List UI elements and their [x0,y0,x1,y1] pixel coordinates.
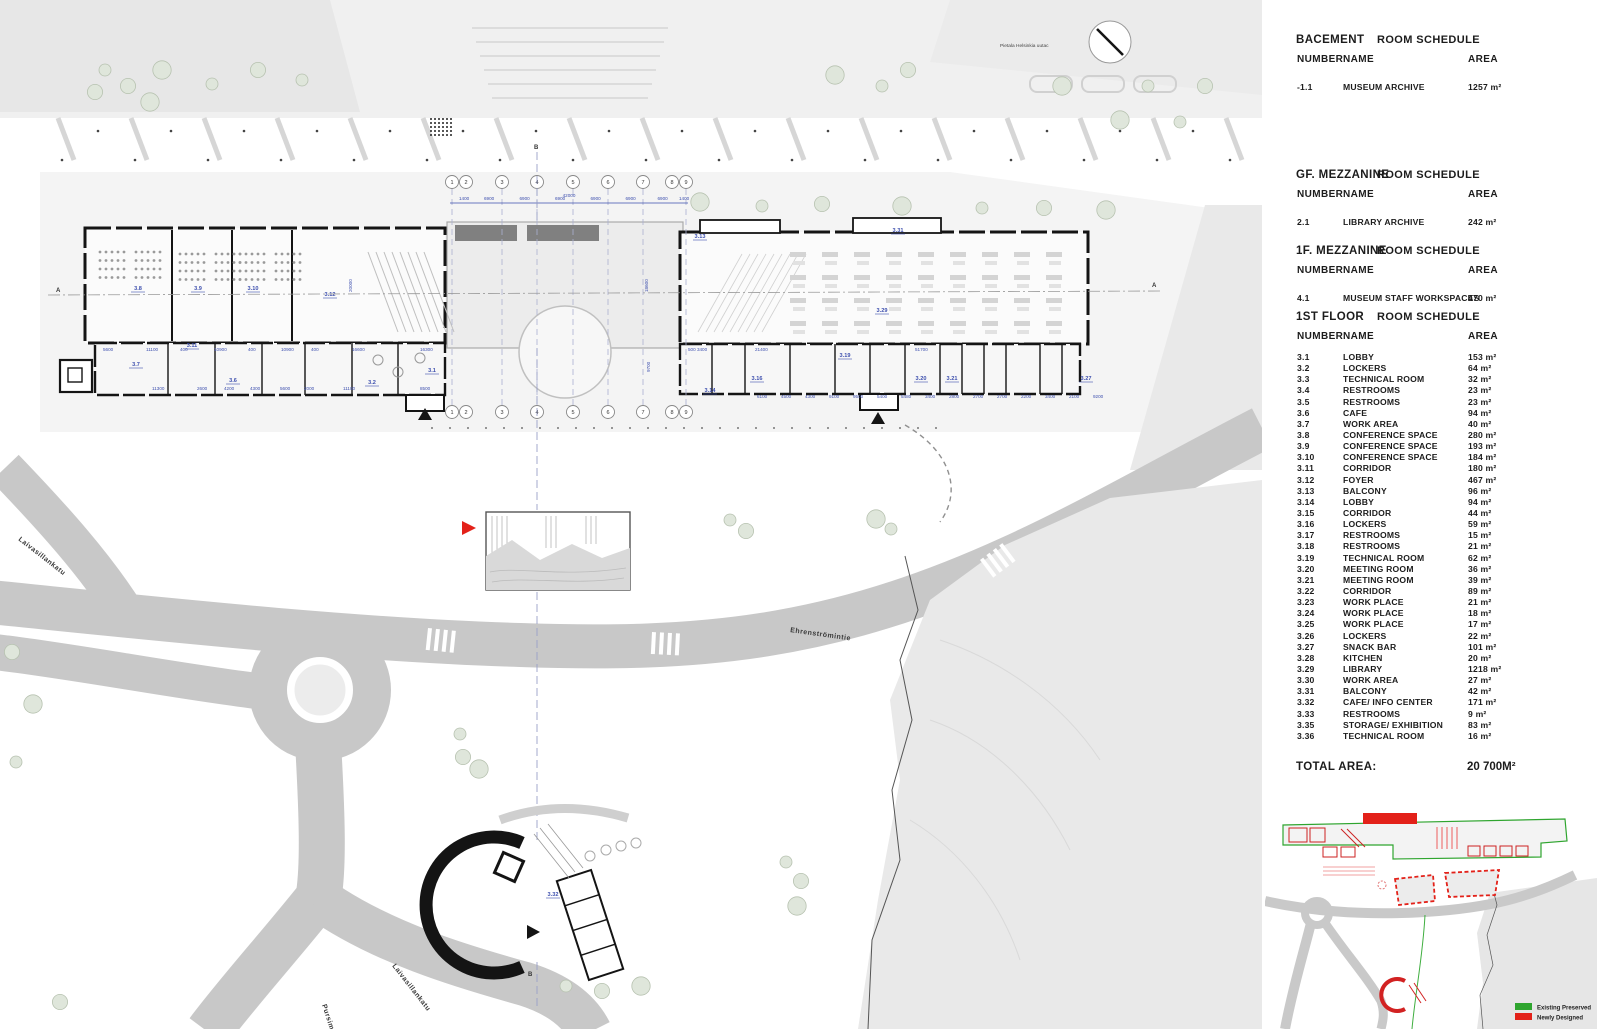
key-plan: Existing Preserved Newly Designed [1265,783,1597,1029]
drawing-sheet: 112233445566778899 42000 140069006900690… [0,0,1600,1029]
svg-text:20000: 20000 [348,279,353,292]
table-row: 3.3TECHNICAL ROOM32 m² [1262,374,1600,385]
table-row: 3.9CONFERENCE SPACE193 m² [1262,441,1600,452]
red-section-marker [462,521,476,535]
table-row: 3.15CORRIDOR44 m² [1262,508,1600,519]
table-row: -1.1MUSEUM ARCHIVE1257 m² [1262,82,1600,93]
section-marker-a-right: A [1152,283,1157,289]
section-marker-a-left: A [56,288,61,294]
svg-text:9100: 9100 [829,394,840,399]
schedule-title: ROOM SCHEDULE [1377,34,1480,46]
floor-title: BACEMENT [1296,34,1364,46]
svg-text:4500: 4500 [781,394,792,399]
table-row: 4.1MUSEUM STAFF WORKSPACES470 m² [1262,293,1600,304]
table-row: 3.10CONFERENCE SPACE184 m² [1262,452,1600,463]
table-row: 3.13BALCONY96 m² [1262,486,1600,497]
svg-text:3.21: 3.21 [947,376,958,382]
svg-text:3.2: 3.2 [368,380,376,386]
lane-arrow [905,425,951,522]
table-rows: 3.1LOBBY153 m²3.2LOCKERS64 m²3.3TECHNICA… [1262,352,1600,742]
table-rows: -1.1MUSEUM ARCHIVE1257 m² [1262,82,1600,93]
svg-text:5: 5 [571,410,574,416]
svg-text:3400: 3400 [925,394,936,399]
pavilion-entry-marker [527,925,540,939]
table-row: 3.21MEETING ROOM39 m² [1262,575,1600,586]
circular-court [519,306,611,398]
schedule-title: ROOM SCHEDULE [1377,245,1480,257]
svg-text:8: 8 [670,180,673,186]
table-row: 3.8CONFERENCE SPACE280 m² [1262,430,1600,441]
table-header: NUMBER NAME AREA [1262,331,1600,343]
dotted-patch [430,118,452,136]
svg-text:6900: 6900 [658,196,669,201]
svg-text:10900: 10900 [281,347,294,352]
svg-text:3.13: 3.13 [695,234,706,240]
svg-text:3.32: 3.32 [548,892,559,898]
table-row: 3.5RESTROOMS23 m² [1262,397,1600,408]
table-row: 3.25WORK PLACE17 m² [1262,619,1600,630]
table-row: 3.12FOYER467 m² [1262,475,1600,486]
central-roof-2 [527,225,599,241]
svg-text:11100: 11100 [146,347,159,352]
svg-text:3.12: 3.12 [325,292,336,298]
svg-text:3.6: 3.6 [229,378,237,384]
table-header: NUMBER NAME AREA [1262,189,1600,201]
table-row: 3.19TECHNICAL ROOM62 m² [1262,553,1600,564]
section-inset [486,512,630,590]
svg-text:3.16: 3.16 [752,376,763,382]
svg-text:3.20: 3.20 [916,376,927,382]
left-annex [60,360,92,392]
table-row: 3.24WORK PLACE18 m² [1262,608,1600,619]
svg-text:3.27: 3.27 [1081,376,1092,382]
table-row: 2.1LIBRARY ARCHIVE242 m² [1262,217,1600,228]
svg-text:5600: 5600 [103,347,114,352]
svg-text:400: 400 [311,347,319,352]
total-area-value: 20 700M² [1467,761,1516,773]
table-row: 3.29LIBRARY1218 m² [1262,664,1600,675]
roundabout-island [293,663,347,717]
svg-text:6900: 6900 [626,196,637,201]
svg-text:6900: 6900 [591,196,602,201]
svg-text:2700: 2700 [973,394,984,399]
svg-text:3.14: 3.14 [705,388,717,394]
svg-text:2000: 2000 [304,386,315,391]
table-header: NUMBER NAME AREA [1262,265,1600,277]
schedule-1st-floor: 1ST FLOOR ROOM SCHEDULE NUMBER NAME AREA… [1262,311,1600,742]
right-lower-strip [680,344,1080,394]
svg-text:5: 5 [571,180,574,186]
svg-text:4200: 4200 [224,386,235,391]
svg-text:16300: 16300 [420,347,433,352]
schedule-gf-mezzanine: GF. MEZZANINE ROOM SCHEDULE NUMBER NAME … [1262,169,1600,228]
svg-text:1400: 1400 [679,196,690,201]
svg-text:21400: 21400 [755,347,768,352]
table-row: 3.26LOCKERS22 m² [1262,631,1600,642]
table-row: 3.14LOBBY94 m² [1262,497,1600,508]
site-plan: 112233445566778899 42000 140069006900690… [0,0,1262,1029]
svg-text:10900: 10900 [214,347,227,352]
svg-text:1: 1 [450,410,453,416]
svg-text:7: 7 [641,410,644,416]
total-area-label: TOTAL AREA: [1296,761,1377,773]
legend-swatch-new [1515,1013,1532,1020]
svg-text:2600: 2600 [197,386,208,391]
street-label-bottom-left: Pursimiehenkatu [320,1003,346,1029]
svg-text:9: 9 [684,180,687,186]
schedule-title: ROOM SCHEDULE [1377,169,1480,181]
svg-text:6900: 6900 [555,196,566,201]
table-row: 3.31BALCONY42 m² [1262,686,1600,697]
svg-text:5480: 5480 [901,394,912,399]
svg-text:500 3400: 500 3400 [688,347,708,352]
schedule-1f-mezzanine: 1F. MEZZANINE ROOM SCHEDULE NUMBER NAME … [1262,245,1600,304]
total-area-row: TOTAL AREA: 20 700M² [1262,761,1600,777]
svg-text:3.7: 3.7 [132,362,140,368]
table-row: 3.30WORK AREA27 m² [1262,675,1600,686]
svg-text:9700: 9700 [646,361,651,372]
parking-rows [58,118,1262,161]
site-topleft [0,0,360,112]
floor-title: 1ST FLOOR [1296,311,1364,323]
svg-text:6900: 6900 [484,196,495,201]
svg-text:3.11: 3.11 [187,343,198,349]
svg-text:18600: 18600 [644,279,649,292]
terrain-park [858,480,1262,1029]
table-rows: 2.1LIBRARY ARCHIVE242 m² [1262,217,1600,228]
schedule-basement: BACEMENT ROOM SCHEDULE NUMBER NAME AREA … [1262,34,1600,93]
table-rows: 4.1MUSEUM STAFF WORKSPACES470 m² [1262,293,1600,304]
svg-text:2700: 2700 [997,394,1008,399]
north-arrow-icon [1089,21,1131,63]
table-row: 3.2LOCKERS64 m² [1262,363,1600,374]
svg-text:3: 3 [500,180,503,186]
svg-text:4300: 4300 [250,386,261,391]
svg-text:9200: 9200 [1093,394,1104,399]
svg-text:2: 2 [464,180,467,186]
svg-text:9: 9 [684,410,687,416]
svg-text:6900: 6900 [520,196,531,201]
svg-text:3.8: 3.8 [134,286,142,292]
floor-title: GF. MEZZANINE [1296,169,1389,181]
table-row: 3.20MEETING ROOM36 m² [1262,564,1600,575]
section-marker-b-bottom: B [528,972,533,978]
table-row: 3.11CORRIDOR180 m² [1262,463,1600,474]
table-row: 3.27SNACK BAR101 m² [1262,642,1600,653]
svg-text:2200: 2200 [1021,394,1032,399]
svg-text:8500: 8500 [420,386,431,391]
table-row: 3.22CORRIDOR89 m² [1262,586,1600,597]
central-roof-1 [455,225,517,241]
svg-text:3.10: 3.10 [248,286,259,292]
table-row: 3.7WORK AREA40 m² [1262,419,1600,430]
svg-text:3.31: 3.31 [893,228,904,234]
table-row: 3.23WORK PLACE21 m² [1262,597,1600,608]
svg-text:5600: 5600 [280,386,291,391]
svg-text:8: 8 [670,410,673,416]
table-row: 3.33RESTROOMS9 m² [1262,709,1600,720]
svg-text:3.9: 3.9 [194,286,202,292]
svg-text:16600: 16600 [352,347,365,352]
legend-swatch-existing [1515,1003,1532,1010]
table-row: 3.28KITCHEN20 m² [1262,653,1600,664]
svg-text:1400: 1400 [459,196,470,201]
svg-text:3.19: 3.19 [840,353,851,359]
table-row: 3.35STORAGE/ EXHIBITION83 m² [1262,720,1600,731]
balcony-313 [700,220,780,233]
legend-label-existing: Existing Preserved [1537,1006,1591,1012]
svg-text:11100: 11100 [343,386,356,391]
svg-text:3.29: 3.29 [877,308,888,314]
svg-text:400: 400 [248,347,256,352]
table-header: NUMBER NAME AREA [1262,54,1600,66]
svg-text:3400: 3400 [1045,394,1056,399]
table-row: 3.16LOCKERS59 m² [1262,519,1600,530]
svg-text:6: 6 [606,410,609,416]
table-row: 3.17RESTROOMS15 m² [1262,530,1600,541]
legend-label-new: Newly Designed [1537,1016,1583,1022]
table-row: 3.1LOBBY153 m² [1262,352,1600,363]
table-row: 3.4RESTROOMS23 m² [1262,385,1600,396]
schedule-title: ROOM SCHEDULE [1377,311,1480,323]
table-row: 3.36TECHNICAL ROOM16 m² [1262,731,1600,742]
svg-text:2: 2 [464,410,467,416]
svg-text:3.1: 3.1 [428,368,436,374]
svg-text:1: 1 [450,180,453,186]
table-row: 3.6CAFE94 m² [1262,408,1600,419]
svg-text:2800: 2800 [949,394,960,399]
room-schedule-panel: BACEMENT ROOM SCHEDULE NUMBER NAME AREA … [1262,0,1600,1029]
table-row: 3.18RESTROOMS21 m² [1262,541,1600,552]
svg-text:51700: 51700 [915,347,928,352]
section-marker-b-top: B [534,145,539,151]
svg-text:9500: 9500 [853,394,864,399]
svg-text:4300: 4300 [805,394,816,399]
svg-text:5400: 5400 [877,394,888,399]
svg-text:7: 7 [641,180,644,186]
svg-text:3: 3 [500,410,503,416]
svg-text:11300: 11300 [152,386,165,391]
svg-text:6100: 6100 [757,394,768,399]
floor-title: 1F. MEZZANINE [1296,245,1387,257]
svg-text:6: 6 [606,180,609,186]
plan-caption: Pietala Helsinkia uutac [1000,43,1049,49]
table-row: 3.32CAFE/ INFO CENTER171 m² [1262,697,1600,708]
svg-text:2100: 2100 [1069,394,1080,399]
